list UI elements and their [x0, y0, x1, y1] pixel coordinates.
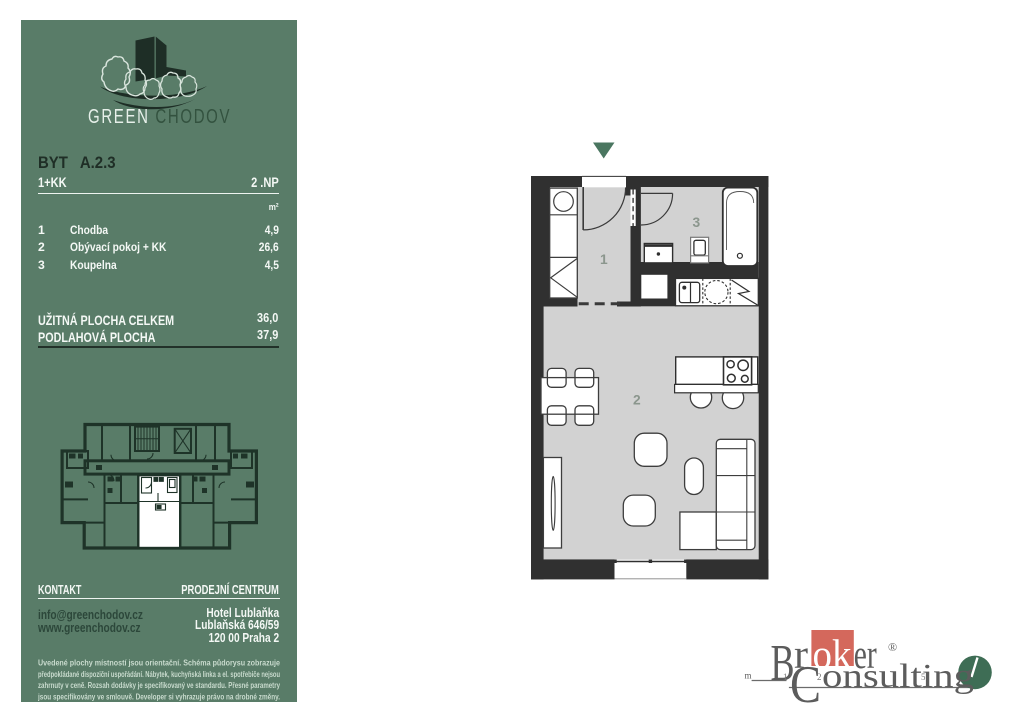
svg-text:5: 5	[921, 672, 926, 682]
svg-text:2: 2	[817, 672, 822, 682]
svg-text:1: 1	[783, 672, 788, 682]
svg-text:®: ®	[888, 640, 897, 654]
svg-text:2: 2	[633, 393, 641, 408]
svg-text:onsulting: onsulting	[822, 658, 974, 695]
svg-text:m: m	[745, 671, 752, 681]
svg-text:C: C	[790, 656, 821, 714]
svg-text:1: 1	[600, 252, 608, 267]
svg-text:3: 3	[693, 215, 701, 230]
